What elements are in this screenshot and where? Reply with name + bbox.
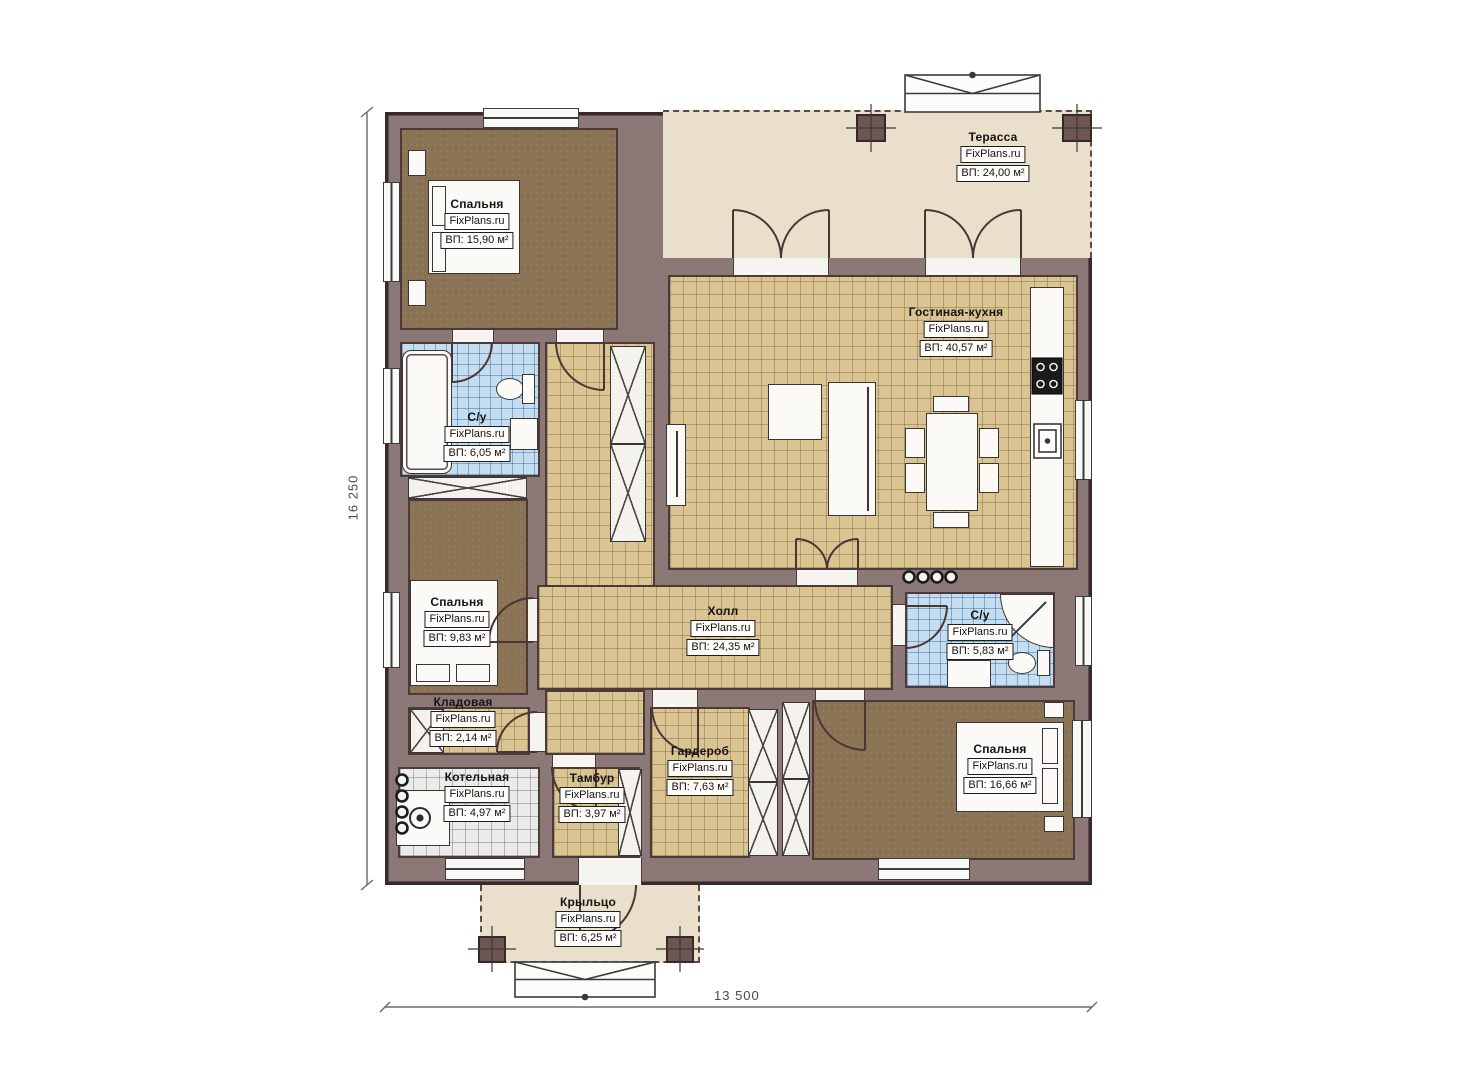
door-opening xyxy=(652,690,698,707)
room-name: Холл xyxy=(708,604,739,618)
label-bathroom-2: С/у FixPlans.ru ВП: 5,83 м² xyxy=(946,608,1013,660)
window xyxy=(383,592,400,668)
room-area: ВП: 3,97 м² xyxy=(558,806,625,823)
terrace-column xyxy=(856,114,886,142)
porch-column xyxy=(478,936,506,963)
closet xyxy=(782,702,810,779)
chair xyxy=(905,463,925,493)
room-area: ВП: 40,57 м² xyxy=(919,340,992,357)
room-area: ВП: 6,25 м² xyxy=(554,930,621,947)
door-opening xyxy=(528,598,537,642)
room-name: Котельная xyxy=(445,770,510,784)
room-area: ВП: 15,90 м² xyxy=(440,232,513,249)
door-opening xyxy=(815,690,865,700)
room-brand: FixPlans.ru xyxy=(690,620,755,637)
closet xyxy=(610,346,646,444)
door-opening xyxy=(893,604,905,646)
room-area: ВП: 24,00 м² xyxy=(956,165,1029,182)
label-wardrobe: Гардероб FixPlans.ru ВП: 7,63 м² xyxy=(666,744,733,796)
room-brand: FixPlans.ru xyxy=(444,786,509,803)
toilet-tank xyxy=(1037,650,1050,676)
chair xyxy=(933,396,969,412)
chair xyxy=(933,512,969,528)
room-name: Спальня xyxy=(430,595,483,609)
sofa xyxy=(828,382,876,516)
room-area: ВП: 6,05 м² xyxy=(443,445,510,462)
dining-table xyxy=(926,413,978,511)
chair xyxy=(979,428,999,458)
window xyxy=(383,368,400,444)
door-opening xyxy=(796,570,858,585)
window xyxy=(1072,720,1092,818)
room-area: ВП: 24,35 м² xyxy=(686,639,759,656)
room-area: ВП: 9,83 м² xyxy=(423,630,490,647)
room-brand: FixPlans.ru xyxy=(555,911,620,928)
label-living-kitchen: Гостиная-кухня FixPlans.ru ВП: 40,57 м² xyxy=(909,305,1004,357)
sink xyxy=(947,660,991,688)
chair xyxy=(979,463,999,493)
tv-stand xyxy=(666,424,686,506)
room-brand: FixPlans.ru xyxy=(430,711,495,728)
nightstand xyxy=(408,280,426,306)
sink xyxy=(510,418,538,450)
room-brand: FixPlans.ru xyxy=(444,213,509,230)
door-opening-entrance xyxy=(578,858,642,885)
label-boiler-room: Котельная FixPlans.ru ВП: 4,97 м² xyxy=(443,770,510,822)
boiler-counter xyxy=(396,790,450,846)
toilet-bowl xyxy=(496,378,524,400)
room-hall-floor-stub xyxy=(545,690,645,755)
room-brand: FixPlans.ru xyxy=(424,611,489,628)
nightstand xyxy=(1044,702,1064,718)
label-bedroom-2: Спальня FixPlans.ru ВП: 9,83 м² xyxy=(423,595,490,647)
closet xyxy=(782,779,810,856)
room-brand: FixPlans.ru xyxy=(559,787,624,804)
room-name: Тамбур xyxy=(570,771,615,785)
room-brand: FixPlans.ru xyxy=(960,146,1025,163)
room-area: ВП: 4,97 м² xyxy=(443,805,510,822)
label-bedroom-3: Спальня FixPlans.ru ВП: 16,66 м² xyxy=(963,742,1036,794)
window xyxy=(1075,400,1092,480)
label-bedroom-1: Спальня FixPlans.ru ВП: 15,90 м² xyxy=(440,197,513,249)
toilet-tank xyxy=(522,374,535,404)
room-area: ВП: 7,63 м² xyxy=(666,779,733,796)
room-name: Гардероб xyxy=(671,744,729,758)
room-name: С/у xyxy=(467,410,486,424)
window xyxy=(483,108,579,128)
room-name: С/у xyxy=(970,608,989,622)
pillow xyxy=(1042,728,1058,764)
closet xyxy=(408,477,527,499)
coffee-table xyxy=(768,384,822,440)
window xyxy=(878,858,970,880)
kitchen-counter xyxy=(1030,287,1064,567)
pillow xyxy=(456,664,490,682)
door-opening xyxy=(552,755,596,767)
window xyxy=(445,858,525,880)
room-name: Гостиная-кухня xyxy=(909,305,1004,319)
door-opening xyxy=(530,712,545,752)
door-opening xyxy=(556,330,604,342)
closet xyxy=(610,444,646,542)
nightstand xyxy=(1044,816,1064,832)
pillow xyxy=(416,664,450,682)
door-opening xyxy=(452,330,494,342)
entry-stairs-top xyxy=(905,73,1040,113)
label-porch: Крыльцо FixPlans.ru ВП: 6,25 м² xyxy=(554,895,621,947)
window xyxy=(383,182,400,282)
chair xyxy=(905,428,925,458)
label-vestibule: Тамбур FixPlans.ru ВП: 3,97 м² xyxy=(558,771,625,823)
pillow xyxy=(1042,768,1058,804)
nightstand xyxy=(408,150,426,176)
room-brand: FixPlans.ru xyxy=(444,426,509,443)
room-brand: FixPlans.ru xyxy=(947,624,1012,641)
label-bathroom-1: С/у FixPlans.ru ВП: 6,05 м² xyxy=(443,410,510,462)
room-brand: FixPlans.ru xyxy=(923,321,988,338)
room-name: Спальня xyxy=(450,197,503,211)
room-area: ВП: 16,66 м² xyxy=(963,777,1036,794)
window xyxy=(1075,596,1092,666)
room-brand: FixPlans.ru xyxy=(667,760,732,777)
label-terrace: Терасса FixPlans.ru ВП: 24,00 м² xyxy=(956,130,1029,182)
entry-stairs-bottom xyxy=(515,962,655,1000)
label-hall: Холл FixPlans.ru ВП: 24,35 м² xyxy=(686,604,759,656)
terrace-column xyxy=(1062,114,1092,142)
label-storage: Кладовая FixPlans.ru ВП: 2,14 м² xyxy=(429,695,496,747)
door-opening-terrace xyxy=(925,258,1021,275)
closet xyxy=(748,709,778,782)
floor-plan: Спальня FixPlans.ru ВП: 15,90 м² Терасса… xyxy=(0,0,1473,1080)
room-name: Терасса xyxy=(969,130,1018,144)
room-name: Спальня xyxy=(973,742,1026,756)
room-area: ВП: 5,83 м² xyxy=(946,643,1013,660)
closet xyxy=(748,782,778,856)
dimension-bottom: 13 500 xyxy=(714,988,760,1003)
tv-screen xyxy=(676,431,678,497)
door-opening-terrace xyxy=(733,258,829,275)
room-brand: FixPlans.ru xyxy=(967,758,1032,775)
room-area: ВП: 2,14 м² xyxy=(429,730,496,747)
sofa-back xyxy=(867,387,869,511)
dimension-left: 16 250 xyxy=(345,475,360,521)
porch-column xyxy=(666,936,694,963)
room-name: Кладовая xyxy=(433,695,492,709)
room-name: Крыльцо xyxy=(560,895,616,909)
